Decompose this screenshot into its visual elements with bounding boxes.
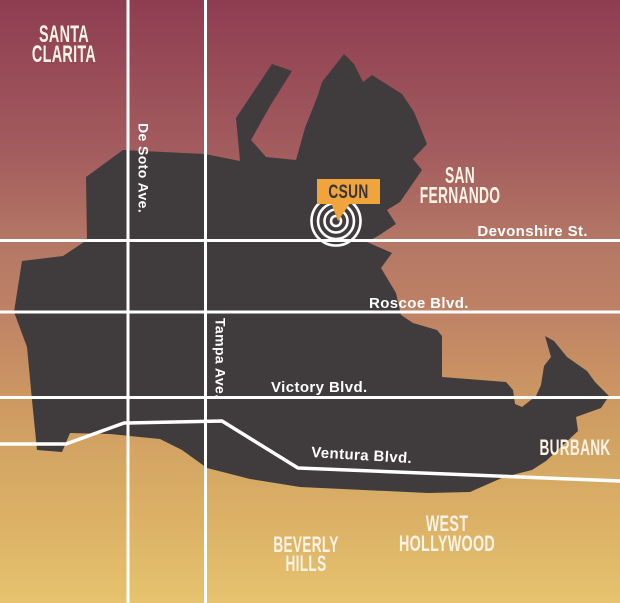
street-label-tampa: Tampa Ave. — [213, 318, 229, 399]
street-label-roscoe: Roscoe Blvd. — [369, 295, 469, 312]
region-label-santa-clarita: SANTA CLARITA — [32, 21, 96, 68]
region-label-line: CLARITA — [32, 41, 96, 68]
region-label-line: BURBANK — [539, 435, 610, 460]
street-label-devonshire: Devonshire St. — [477, 223, 588, 240]
street-label-de-soto: De Soto Ave. — [136, 123, 152, 213]
map-container: CSUN De Soto Ave. Tampa Ave. Devonshire … — [0, 0, 620, 603]
region-label-line: FERNANDO — [420, 184, 501, 209]
region-label-burbank: BURBANK — [539, 435, 610, 460]
region-label-line: HILLS — [286, 551, 327, 576]
region-label-line: HOLLYWOOD — [399, 531, 495, 556]
map-canvas: CSUN De Soto Ave. Tampa Ave. Devonshire … — [0, 0, 620, 603]
csun-marker-label: CSUN — [328, 181, 368, 203]
street-label-victory: Victory Blvd. — [271, 379, 368, 396]
